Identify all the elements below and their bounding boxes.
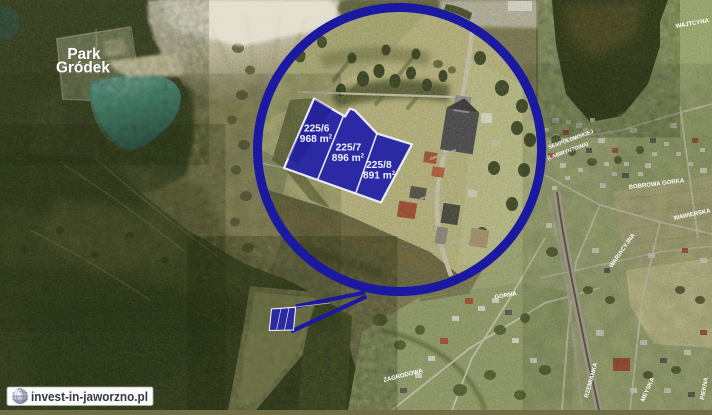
svg-text:225/6: 225/6 <box>304 123 330 134</box>
svg-text:225/7: 225/7 <box>336 143 362 154</box>
svg-text:968 m2: 968 m2 <box>300 134 333 145</box>
svg-text:Gródek: Gródek <box>56 59 110 76</box>
svg-text:invest-in-jaworzno.pl: invest-in-jaworzno.pl <box>31 389 148 404</box>
svg-text:891 m2: 891 m2 <box>363 170 396 181</box>
svg-text:896 m2: 896 m2 <box>332 153 365 164</box>
